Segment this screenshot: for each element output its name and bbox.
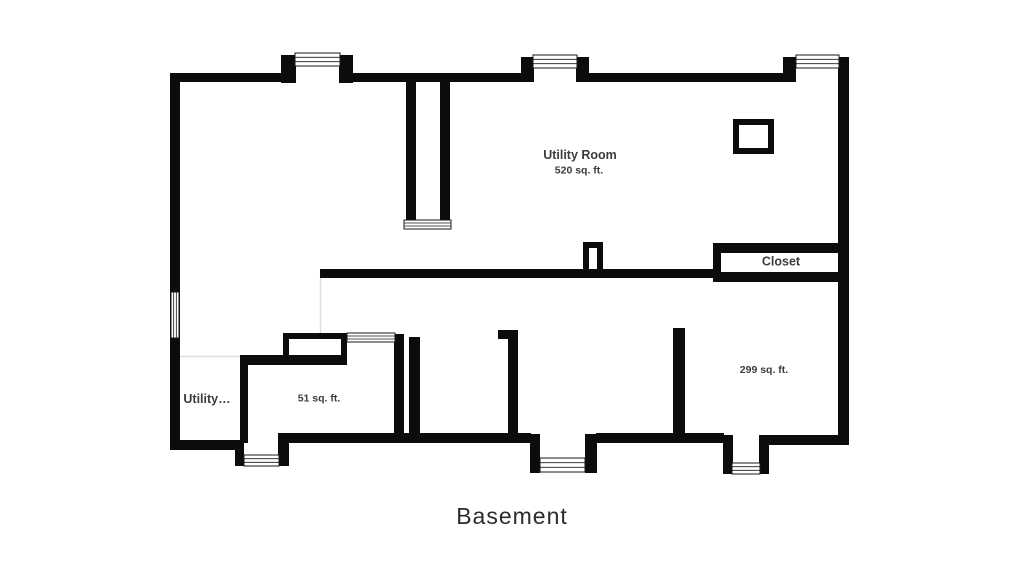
wall-segment [440, 80, 450, 221]
wall-segment [339, 55, 353, 83]
wall-segment [585, 73, 788, 82]
wall-segment [406, 80, 416, 221]
window-frame [732, 463, 760, 474]
wall-segment [235, 440, 244, 466]
wall-segment [409, 337, 420, 443]
walls-layer [170, 55, 849, 474]
wall-segment [596, 433, 724, 443]
window-frame [347, 333, 395, 342]
window-top-right-icon [796, 55, 839, 68]
window-well-left-icon [244, 455, 279, 466]
floorplan-svg: Utility Room520 sq. ft.Closet299 sq. ft.… [0, 0, 1024, 575]
label-room-299-area: 299 sq. ft. [740, 364, 789, 376]
wall-segment [240, 355, 347, 365]
label-closet: Closet [762, 255, 801, 269]
wall-segment [508, 330, 518, 440]
wall-segment [281, 55, 296, 83]
wall-segment [320, 269, 718, 278]
wall-segment [783, 57, 796, 82]
window-frame [404, 220, 451, 229]
wall-segment [597, 242, 603, 272]
wall-segment [278, 433, 531, 443]
wall-segment [170, 73, 180, 450]
wall-segment [530, 434, 540, 473]
wall-segment [521, 57, 534, 82]
label-room-51-area: 51 sq. ft. [298, 393, 341, 405]
window-frame [533, 55, 577, 68]
wall-segment [170, 440, 244, 450]
wall-segment [733, 148, 774, 154]
label-utility-truncated: Utility… [183, 392, 230, 406]
window-well-middle-icon [540, 458, 585, 472]
plan-title: Basement [456, 503, 568, 529]
window-frame [171, 292, 179, 338]
window-frame [540, 458, 585, 472]
window-well-right-icon [732, 463, 760, 474]
wall-patches-layer [289, 339, 341, 355]
wall-segment [394, 334, 404, 443]
wall-segment [673, 328, 685, 440]
wall-segment [583, 242, 589, 272]
label-utility-room-area: 520 sq. ft. [555, 165, 604, 177]
wall-segment [733, 119, 774, 125]
wall-segment [341, 333, 347, 357]
label-utility-room: Utility Room [543, 148, 617, 162]
wall-segment [343, 73, 526, 82]
wall-patch [289, 339, 341, 355]
wall-segment [283, 333, 347, 339]
window-frame [796, 55, 839, 68]
window-frame [244, 455, 279, 466]
window-left-wall-icon [171, 292, 179, 338]
floorplan-page: Utility Room520 sq. ft.Closet299 sq. ft.… [0, 0, 1024, 575]
wall-segment [733, 119, 739, 154]
wall-segment [768, 435, 849, 445]
wall-segment [576, 57, 589, 82]
wall-segment [585, 434, 597, 473]
wall-segment [716, 272, 849, 282]
window-top-middle-icon [533, 55, 577, 68]
stair-opening-icon [404, 220, 451, 229]
wall-segment [283, 333, 289, 357]
wall-segment [768, 119, 774, 154]
wall-segment [240, 355, 248, 443]
windows-layer [171, 53, 839, 474]
window-frame [295, 53, 340, 66]
wall-segment [278, 436, 289, 466]
room-51-opening-icon [347, 333, 395, 342]
window-top-left-icon [295, 53, 340, 66]
wall-segment [170, 73, 290, 82]
wall-segment [713, 243, 721, 282]
wall-segment [713, 243, 849, 253]
